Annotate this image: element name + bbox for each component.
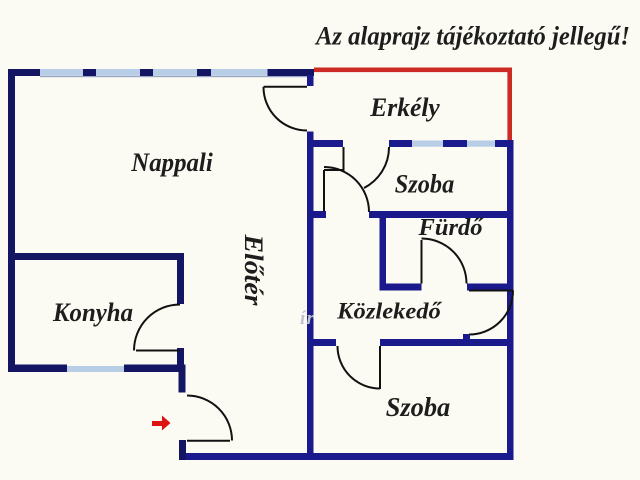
svg-text:Konyha: Konyha (52, 298, 133, 327)
svg-text:Előtér: Előtér (239, 233, 269, 306)
svg-text:Szoba: Szoba (395, 170, 455, 199)
svg-text:Szoba: Szoba (386, 392, 451, 422)
svg-text:Erkély: Erkély (369, 93, 440, 122)
svg-text:Közlekedő: Közlekedő (336, 299, 442, 325)
svg-text:Az alaprajz tájékoztató jelleg: Az alaprajz tájékoztató jellegű! (314, 21, 630, 51)
svg-text:Nappali: Nappali (130, 148, 213, 177)
svg-text:ír: ír (300, 308, 315, 329)
svg-text:Fürdő: Fürdő (418, 214, 485, 241)
